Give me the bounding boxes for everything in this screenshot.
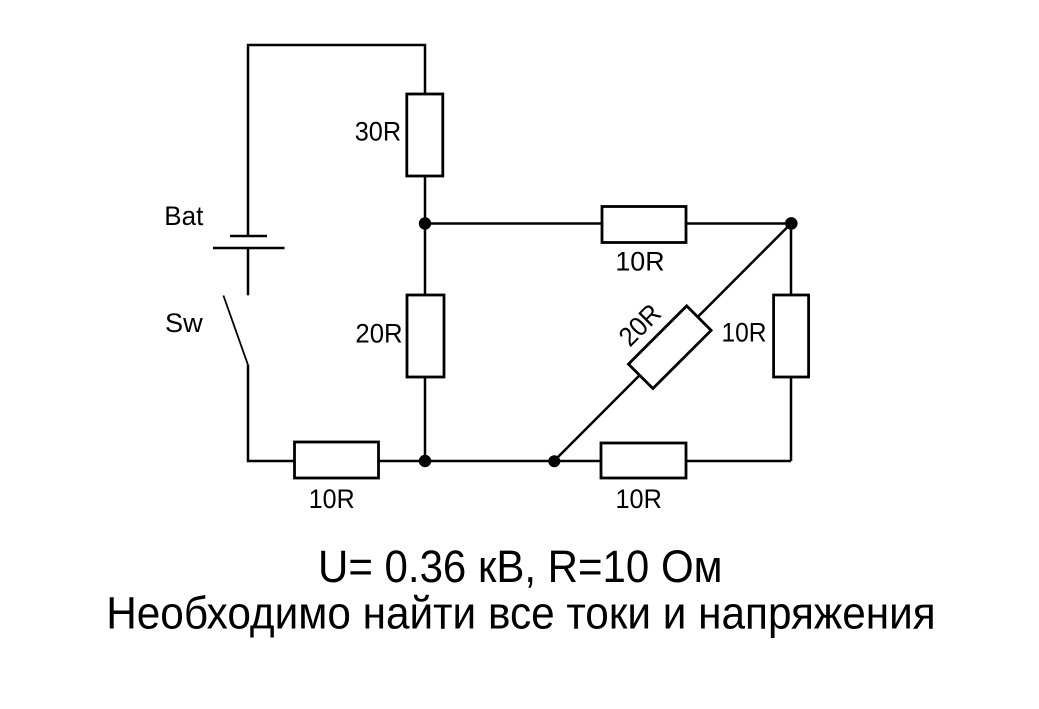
svg-text:Sw: Sw [165,308,203,338]
svg-text:10R: 10R [722,318,767,348]
svg-text:Bat: Bat [164,201,203,231]
svg-text:10R: 10R [616,484,662,514]
svg-text:20R: 20R [355,318,402,348]
svg-text:Необходимо найти все токи и на: Необходимо найти все токи и напряжения [106,588,936,639]
svg-text:30R: 30R [355,116,401,146]
svg-text:U= 0.36 кВ, R=10 Ом: U= 0.36 кВ, R=10 Ом [318,541,723,592]
svg-text:10R: 10R [615,246,664,276]
svg-text:10R: 10R [309,484,355,514]
